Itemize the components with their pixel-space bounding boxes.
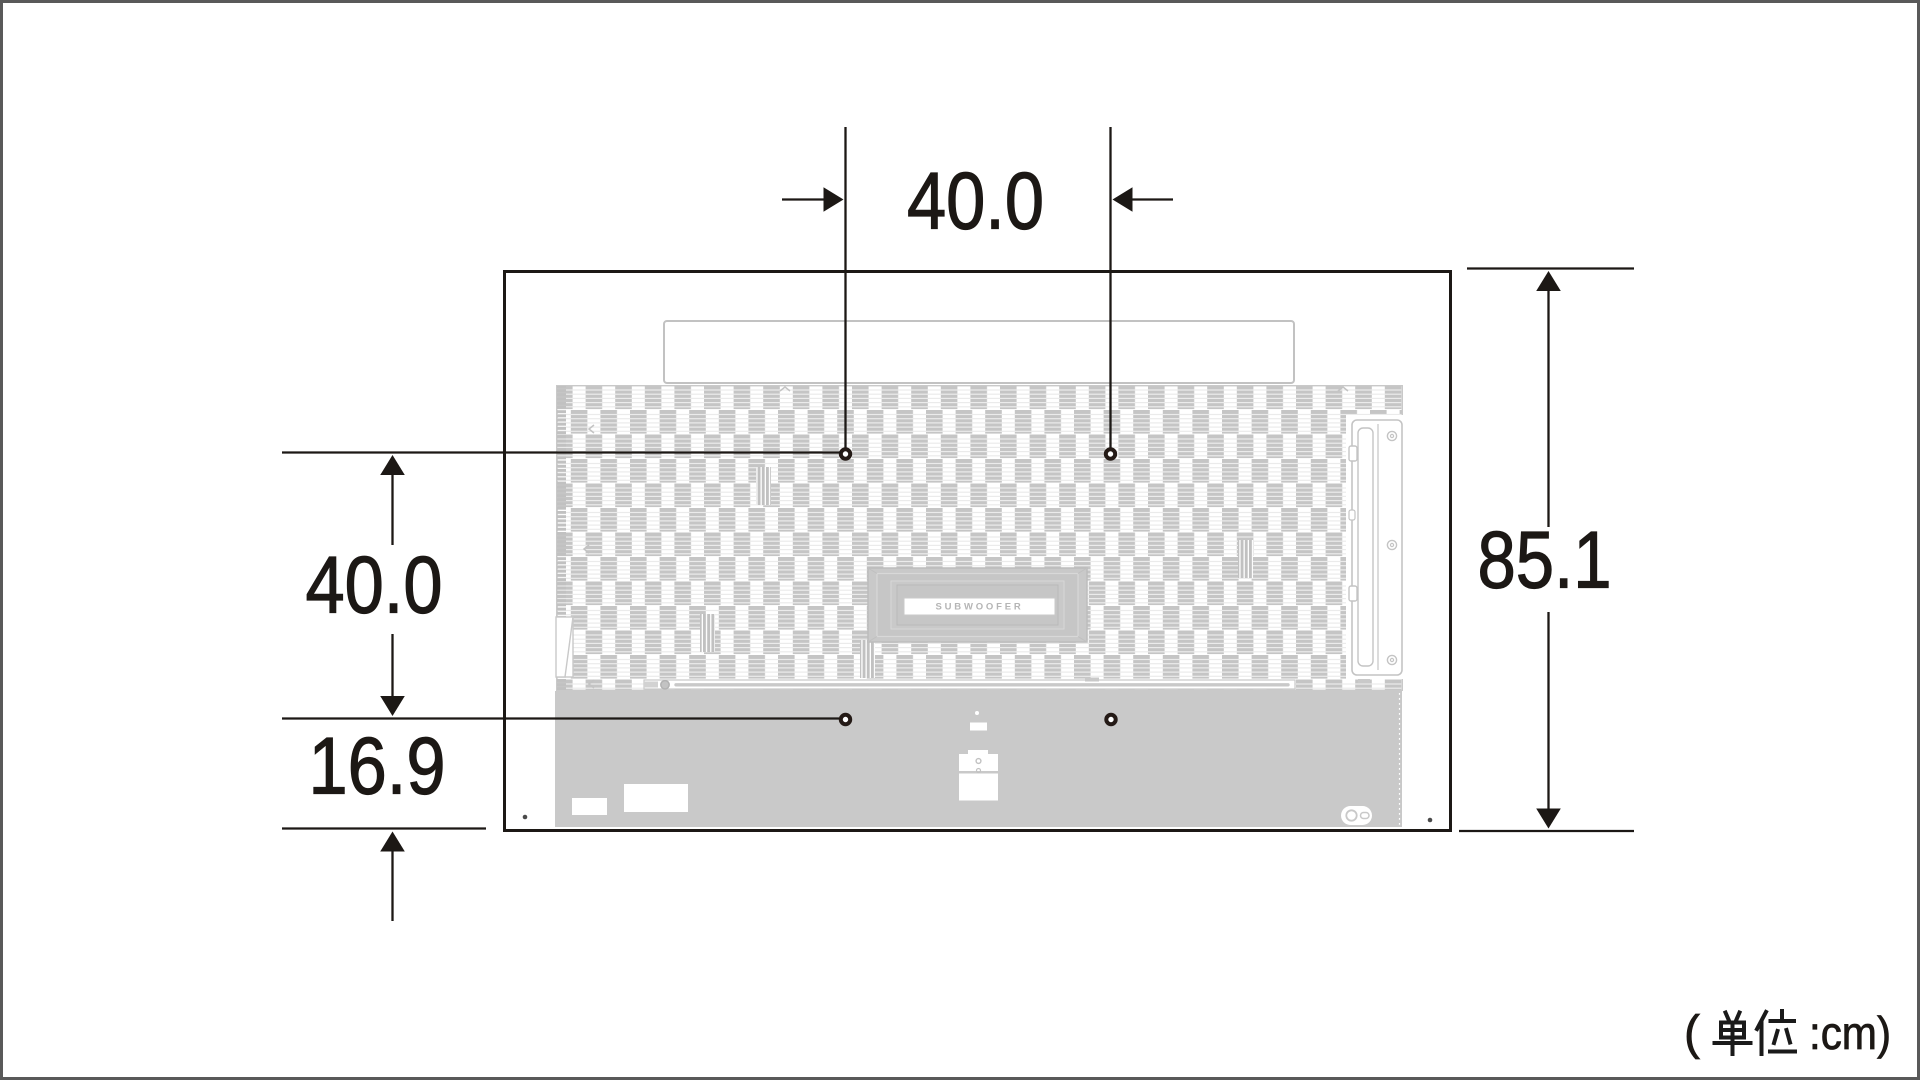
svg-text:85.1: 85.1 xyxy=(1478,516,1612,606)
svg-text:SUBWOOFER: SUBWOOFER xyxy=(935,602,1023,613)
svg-text:16.9: 16.9 xyxy=(309,722,446,812)
svg-text:(: ( xyxy=(1684,1007,1700,1060)
svg-text:40.0: 40.0 xyxy=(306,541,443,631)
svg-text::cm): :cm) xyxy=(1809,1007,1891,1059)
svg-text:40.0: 40.0 xyxy=(907,157,1044,247)
